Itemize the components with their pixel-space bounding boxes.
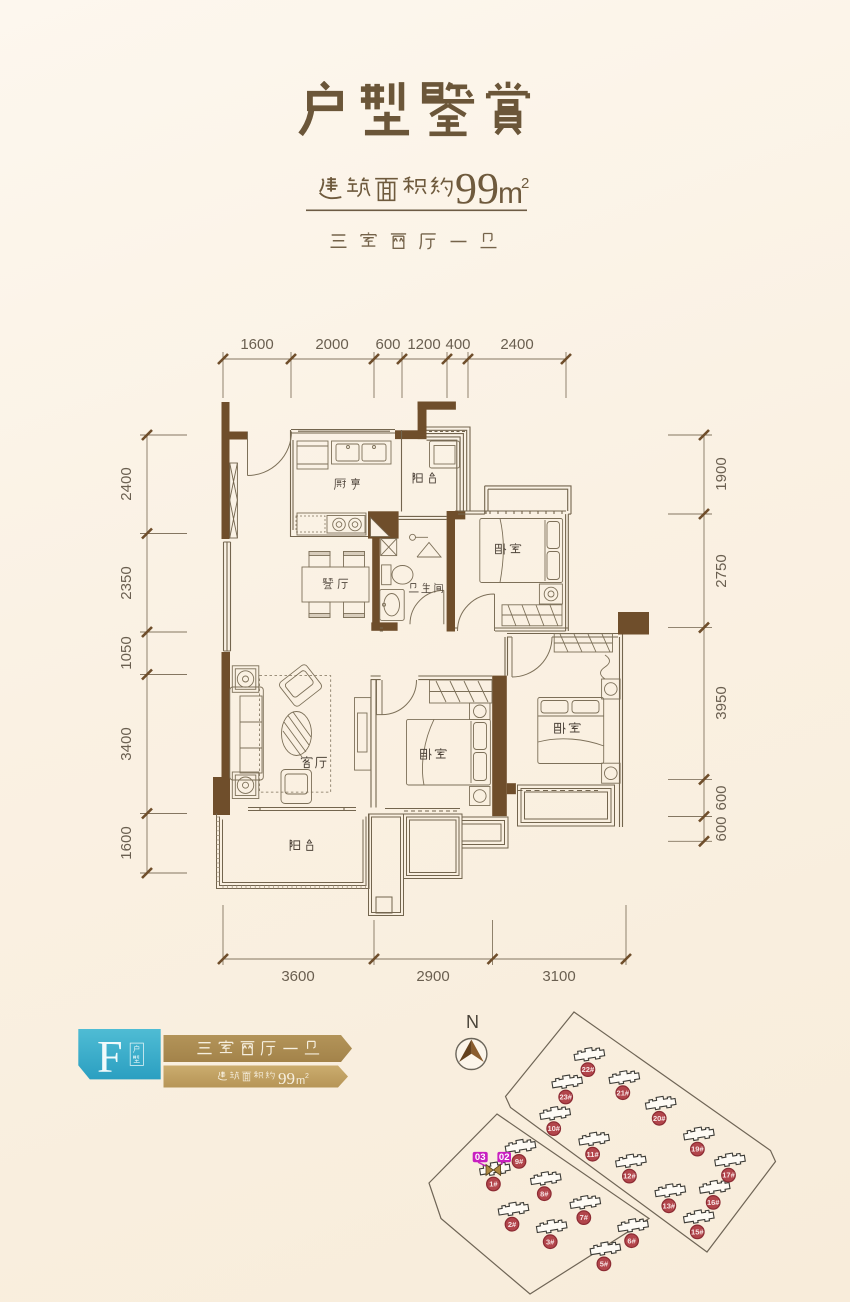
svg-text:600: 600 bbox=[713, 785, 730, 810]
svg-text:600: 600 bbox=[375, 336, 400, 353]
svg-text:22#: 22# bbox=[582, 1065, 595, 1074]
svg-text:8#: 8# bbox=[540, 1189, 549, 1198]
svg-text:3600: 3600 bbox=[281, 968, 314, 985]
svg-text:1#: 1# bbox=[489, 1180, 498, 1189]
svg-text:3950: 3950 bbox=[713, 686, 730, 719]
svg-text:6#: 6# bbox=[627, 1236, 636, 1245]
svg-text:2: 2 bbox=[521, 175, 529, 192]
svg-text:9#: 9# bbox=[515, 1157, 524, 1166]
svg-text:1050: 1050 bbox=[118, 636, 135, 669]
svg-text:400: 400 bbox=[445, 336, 470, 353]
svg-text:23#: 23# bbox=[559, 1093, 572, 1102]
svg-text:2400: 2400 bbox=[500, 336, 533, 353]
svg-text:2: 2 bbox=[305, 1073, 309, 1080]
svg-text:5#: 5# bbox=[600, 1260, 609, 1269]
svg-text:13#: 13# bbox=[663, 1201, 676, 1210]
svg-text:2900: 2900 bbox=[416, 968, 449, 985]
svg-text:3#: 3# bbox=[546, 1237, 555, 1246]
svg-text:1200: 1200 bbox=[407, 336, 440, 353]
svg-text:15#: 15# bbox=[691, 1228, 704, 1237]
svg-text:17#: 17# bbox=[722, 1171, 735, 1180]
svg-text:F: F bbox=[97, 1031, 123, 1082]
svg-text:03: 03 bbox=[475, 1152, 486, 1163]
svg-text:2000: 2000 bbox=[315, 336, 348, 353]
svg-text:7#: 7# bbox=[580, 1213, 589, 1222]
svg-text:16#: 16# bbox=[707, 1198, 720, 1207]
svg-text:99: 99 bbox=[455, 164, 499, 213]
svg-text:1600: 1600 bbox=[240, 336, 273, 353]
svg-text:1900: 1900 bbox=[713, 457, 730, 490]
svg-text:02: 02 bbox=[499, 1152, 510, 1163]
svg-text:m: m bbox=[296, 1075, 305, 1087]
svg-text:N: N bbox=[466, 1012, 479, 1032]
svg-text:11#: 11# bbox=[587, 1150, 600, 1159]
svg-text:99: 99 bbox=[278, 1069, 295, 1088]
svg-text:3400: 3400 bbox=[118, 727, 135, 760]
svg-text:2750: 2750 bbox=[713, 554, 730, 587]
svg-text:20#: 20# bbox=[653, 1114, 666, 1123]
svg-text:1600: 1600 bbox=[118, 826, 135, 859]
svg-text:10#: 10# bbox=[547, 1124, 560, 1133]
svg-text:2400: 2400 bbox=[118, 467, 135, 500]
svg-text:21#: 21# bbox=[617, 1088, 630, 1097]
svg-text:2#: 2# bbox=[508, 1220, 517, 1229]
svg-text:600: 600 bbox=[713, 816, 730, 841]
svg-text:3100: 3100 bbox=[542, 968, 575, 985]
svg-text:12#: 12# bbox=[623, 1172, 636, 1181]
svg-text:m: m bbox=[498, 177, 523, 210]
svg-text:19#: 19# bbox=[691, 1145, 704, 1154]
svg-text:2350: 2350 bbox=[118, 566, 135, 599]
